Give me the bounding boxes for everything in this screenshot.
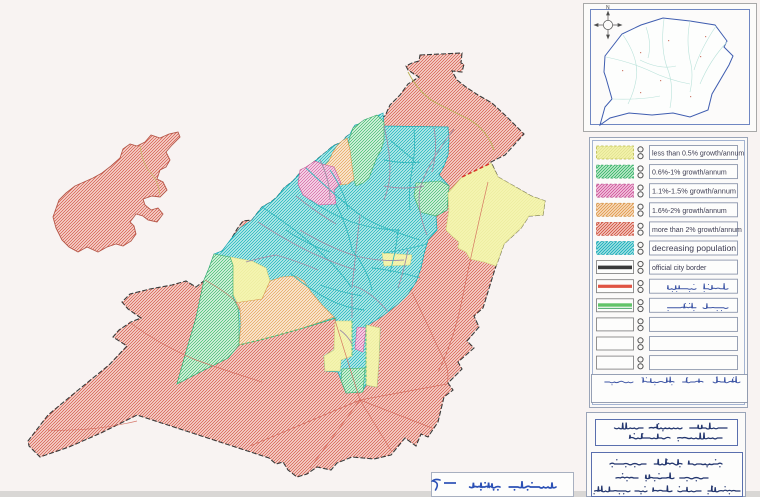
- svg-text:1.1%-1.5% growth/annum: 1.1%-1.5% growth/annum: [652, 187, 736, 196]
- svg-text:more than 2% growth/annum: more than 2% growth/annum: [652, 227, 742, 234]
- svg-text:N: N: [606, 5, 610, 11]
- svg-text:decreasing population: decreasing population: [652, 243, 736, 253]
- svg-text:1.6%-2% growth/annum: 1.6%-2% growth/annum: [652, 208, 727, 215]
- svg-text:0.6%-1% growth/annum: 0.6%-1% growth/annum: [652, 170, 727, 177]
- svg-text:less than 0.5% growth/annum: less than 0.5% growth/annum: [652, 151, 744, 158]
- svg-text:official city border: official city border: [652, 265, 707, 272]
